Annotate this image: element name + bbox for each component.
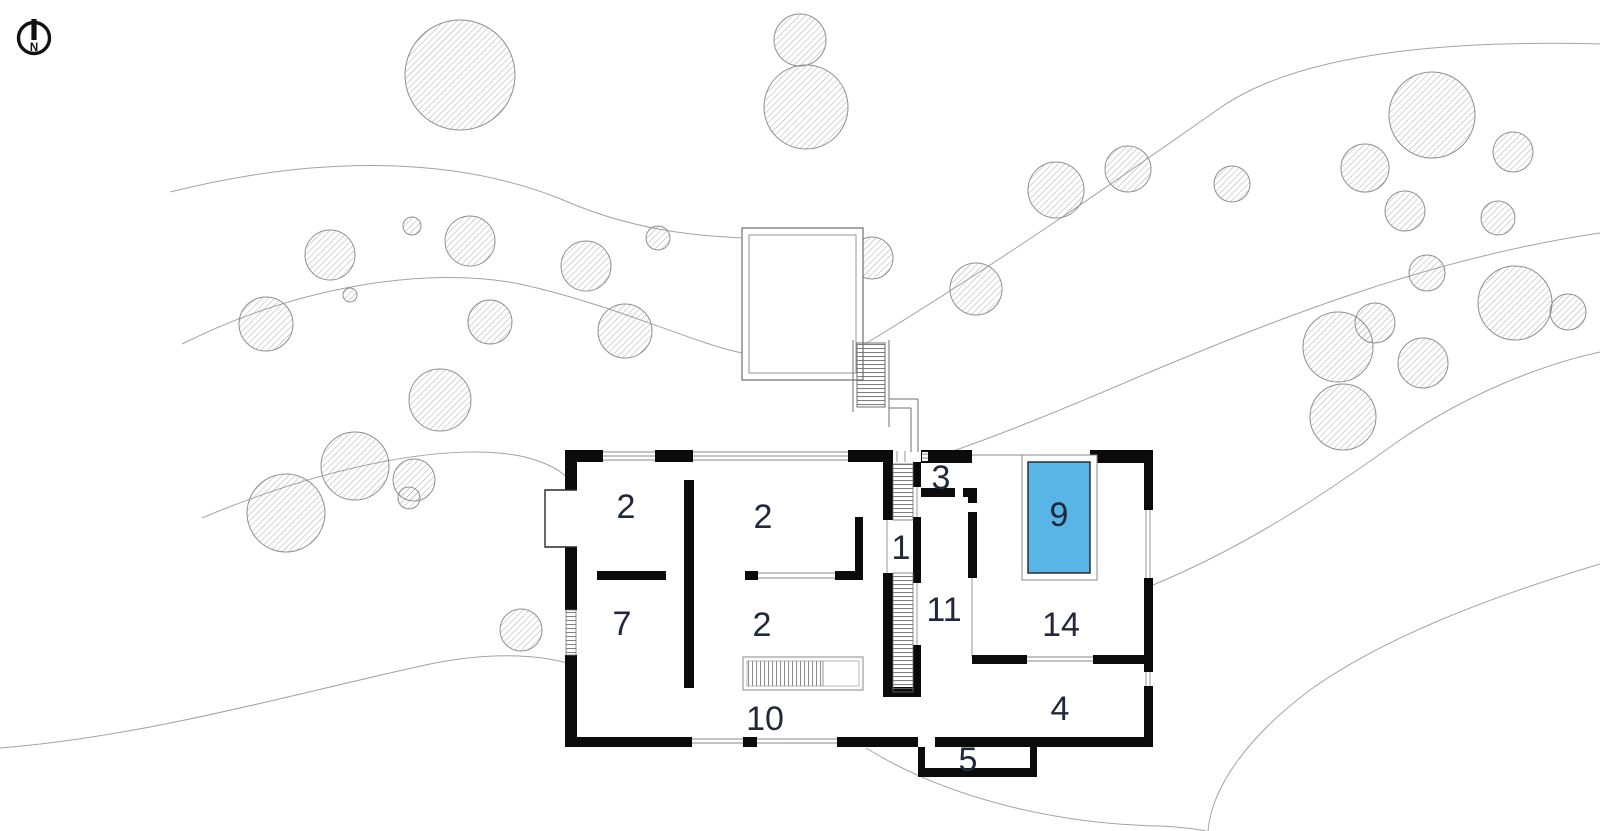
bay-bump-out [545, 490, 577, 547]
tree-symbols [239, 14, 1586, 651]
room-label-1: 1 [892, 529, 911, 567]
north-arrow-icon: N [19, 19, 50, 54]
room-label-7: 7 [613, 605, 632, 643]
interior-stair-strip [743, 657, 863, 690]
site-plan-canvas: 2 2 7 2 10 1 3 11 9 14 4 5 N [0, 0, 1600, 831]
site-plan-page: 2 2 7 2 10 1 3 11 9 14 4 5 N [0, 0, 1600, 831]
entry-walkway [889, 399, 918, 452]
room-label-14: 14 [1042, 606, 1080, 644]
room-label-4: 4 [1051, 690, 1070, 728]
pool-label-9: 9 [1050, 496, 1069, 534]
room-label-10: 10 [746, 700, 784, 738]
room-label-2-lower-middle: 2 [753, 606, 772, 644]
interior-walls [597, 480, 863, 690]
room-labels: 2 2 7 2 10 1 3 11 9 14 4 5 [613, 459, 1080, 779]
exterior-stair [853, 340, 889, 427]
stair-hall-walls [883, 451, 921, 697]
room-label-2-upper-left: 2 [617, 488, 636, 526]
room-label-3: 3 [932, 459, 951, 497]
stair-flight-upper [893, 464, 913, 520]
house-walls-left-block [545, 450, 918, 747]
room-label-5: 5 [959, 741, 978, 779]
stair-flight-lower [893, 573, 913, 692]
north-letter: N [30, 42, 38, 54]
room-label-11: 11 [926, 591, 961, 629]
window-left-wall [566, 610, 576, 655]
entry-porch-5 [918, 747, 1037, 777]
room-label-2-upper-middle: 2 [754, 498, 773, 536]
